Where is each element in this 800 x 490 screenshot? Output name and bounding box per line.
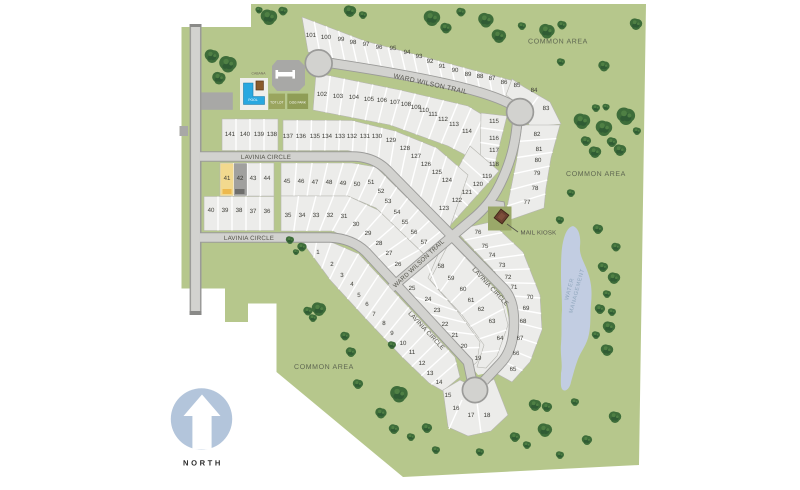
svg-text:48: 48 xyxy=(326,179,333,186)
svg-text:99: 99 xyxy=(338,36,345,43)
svg-text:13: 13 xyxy=(427,370,434,377)
svg-text:100: 100 xyxy=(321,34,332,41)
svg-text:29: 29 xyxy=(365,230,372,237)
svg-text:23: 23 xyxy=(434,307,441,314)
svg-text:45: 45 xyxy=(284,178,291,185)
svg-text:116: 116 xyxy=(489,135,499,142)
svg-text:106: 106 xyxy=(377,97,388,104)
svg-text:63: 63 xyxy=(489,318,496,325)
svg-text:71: 71 xyxy=(511,284,518,291)
svg-text:11: 11 xyxy=(409,349,416,356)
svg-text:COMMON AREA: COMMON AREA xyxy=(566,171,626,178)
svg-text:50: 50 xyxy=(354,181,361,188)
svg-text:141: 141 xyxy=(225,131,236,138)
svg-text:COMMON AREA: COMMON AREA xyxy=(294,364,354,371)
svg-text:DOG PARK: DOG PARK xyxy=(289,100,306,104)
svg-text:105: 105 xyxy=(364,96,375,103)
svg-text:28: 28 xyxy=(376,240,383,247)
svg-text:121: 121 xyxy=(462,189,473,196)
svg-text:16: 16 xyxy=(453,405,460,412)
svg-text:26: 26 xyxy=(395,261,402,268)
svg-text:125: 125 xyxy=(432,169,443,176)
svg-text:107: 107 xyxy=(390,99,401,106)
svg-text:119: 119 xyxy=(482,173,492,180)
svg-text:93: 93 xyxy=(416,53,423,60)
svg-text:98: 98 xyxy=(350,39,357,46)
svg-text:58: 58 xyxy=(438,263,445,270)
svg-text:17: 17 xyxy=(468,412,475,419)
svg-text:126: 126 xyxy=(421,161,432,168)
svg-text:38: 38 xyxy=(236,207,243,214)
svg-text:87: 87 xyxy=(489,75,496,82)
svg-text:127: 127 xyxy=(411,153,422,160)
svg-text:94: 94 xyxy=(404,49,411,56)
svg-text:88: 88 xyxy=(477,73,484,80)
svg-text:15: 15 xyxy=(445,392,452,399)
svg-text:52: 52 xyxy=(378,188,385,195)
svg-text:25: 25 xyxy=(409,285,416,292)
svg-text:135: 135 xyxy=(310,133,321,140)
svg-text:138: 138 xyxy=(267,131,278,138)
svg-text:112: 112 xyxy=(438,116,448,123)
svg-text:24: 24 xyxy=(425,296,432,303)
svg-text:12: 12 xyxy=(419,360,426,367)
svg-text:85: 85 xyxy=(514,82,521,89)
svg-text:104: 104 xyxy=(349,94,360,101)
svg-text:18: 18 xyxy=(484,412,491,419)
svg-text:78: 78 xyxy=(532,185,539,192)
svg-text:54: 54 xyxy=(394,209,401,216)
svg-text:36: 36 xyxy=(264,208,271,215)
svg-text:72: 72 xyxy=(505,274,512,281)
svg-text:83: 83 xyxy=(543,105,550,112)
svg-text:46: 46 xyxy=(298,178,305,185)
svg-text:101: 101 xyxy=(306,32,317,39)
svg-text:111: 111 xyxy=(428,111,438,118)
svg-text:CABANA: CABANA xyxy=(252,72,267,76)
svg-text:73: 73 xyxy=(499,262,506,269)
svg-text:70: 70 xyxy=(527,294,534,301)
svg-text:95: 95 xyxy=(390,45,397,52)
svg-text:LAVINIA CIRCLE: LAVINIA CIRCLE xyxy=(224,235,274,242)
svg-text:113: 113 xyxy=(449,121,459,128)
svg-text:35: 35 xyxy=(285,212,292,219)
svg-text:27: 27 xyxy=(386,250,393,257)
svg-text:60: 60 xyxy=(460,286,467,293)
svg-text:65: 65 xyxy=(510,366,517,373)
svg-text:91: 91 xyxy=(439,63,446,70)
svg-text:133: 133 xyxy=(335,133,346,140)
svg-text:47: 47 xyxy=(312,179,319,186)
svg-text:40: 40 xyxy=(208,207,215,214)
svg-text:68: 68 xyxy=(520,318,527,325)
svg-text:84: 84 xyxy=(531,87,538,94)
svg-text:62: 62 xyxy=(478,306,485,313)
svg-text:89: 89 xyxy=(465,71,472,78)
svg-text:139: 139 xyxy=(254,131,265,138)
svg-text:57: 57 xyxy=(421,239,428,246)
svg-text:TOT LOT: TOT LOT xyxy=(270,101,283,105)
svg-text:115: 115 xyxy=(489,118,499,125)
svg-text:MAIL KIOSK: MAIL KIOSK xyxy=(521,230,557,237)
svg-text:81: 81 xyxy=(536,146,543,153)
svg-text:41: 41 xyxy=(224,175,231,182)
svg-text:79: 79 xyxy=(534,170,541,177)
svg-text:137: 137 xyxy=(283,133,294,140)
svg-text:129: 129 xyxy=(386,137,397,144)
svg-text:128: 128 xyxy=(400,145,411,152)
svg-text:86: 86 xyxy=(501,79,508,86)
svg-text:80: 80 xyxy=(535,157,542,164)
svg-text:120: 120 xyxy=(473,181,484,188)
svg-text:130: 130 xyxy=(372,133,383,140)
svg-text:124: 124 xyxy=(442,177,453,184)
svg-text:49: 49 xyxy=(340,180,347,187)
svg-text:74: 74 xyxy=(489,252,496,259)
svg-text:97: 97 xyxy=(363,41,370,48)
svg-text:75: 75 xyxy=(482,243,489,250)
svg-text:114: 114 xyxy=(462,128,472,135)
svg-text:44: 44 xyxy=(264,175,271,182)
svg-text:43: 43 xyxy=(250,175,257,182)
svg-text:42: 42 xyxy=(237,175,244,182)
svg-text:77: 77 xyxy=(524,199,531,206)
svg-text:31: 31 xyxy=(341,213,348,220)
svg-text:61: 61 xyxy=(468,297,475,304)
svg-text:33: 33 xyxy=(313,212,320,219)
svg-text:POOL: POOL xyxy=(248,98,258,102)
svg-text:32: 32 xyxy=(327,212,334,219)
svg-text:14: 14 xyxy=(436,379,443,386)
svg-text:132: 132 xyxy=(347,133,358,140)
svg-text:20: 20 xyxy=(461,343,468,350)
svg-text:NORTH: NORTH xyxy=(183,459,223,468)
svg-text:64: 64 xyxy=(497,335,504,342)
svg-text:90: 90 xyxy=(452,67,459,74)
svg-text:103: 103 xyxy=(333,93,344,100)
svg-text:131: 131 xyxy=(360,133,371,140)
svg-text:55: 55 xyxy=(402,219,409,226)
svg-text:122: 122 xyxy=(452,197,463,204)
svg-text:59: 59 xyxy=(448,275,455,282)
svg-text:92: 92 xyxy=(427,58,434,65)
svg-text:19: 19 xyxy=(475,355,482,362)
svg-text:COMMON AREA: COMMON AREA xyxy=(528,39,588,46)
svg-text:22: 22 xyxy=(442,321,449,328)
svg-text:69: 69 xyxy=(523,305,530,312)
svg-text:134: 134 xyxy=(322,133,333,140)
svg-text:118: 118 xyxy=(489,161,499,168)
svg-text:37: 37 xyxy=(250,208,257,215)
svg-text:123: 123 xyxy=(439,205,450,212)
svg-text:34: 34 xyxy=(299,212,306,219)
svg-text:LAVINIA CIRCLE: LAVINIA CIRCLE xyxy=(241,154,291,161)
svg-text:30: 30 xyxy=(353,221,360,228)
svg-text:136: 136 xyxy=(296,133,307,140)
svg-text:39: 39 xyxy=(222,207,229,214)
svg-text:53: 53 xyxy=(385,198,392,205)
svg-text:76: 76 xyxy=(475,229,482,236)
svg-text:10: 10 xyxy=(400,340,407,347)
svg-text:96: 96 xyxy=(376,44,383,51)
svg-text:102: 102 xyxy=(317,91,328,98)
svg-text:82: 82 xyxy=(534,131,541,138)
svg-text:21: 21 xyxy=(452,332,459,339)
svg-text:140: 140 xyxy=(240,131,251,138)
svg-text:51: 51 xyxy=(368,179,375,186)
svg-text:67: 67 xyxy=(517,335,524,342)
svg-text:117: 117 xyxy=(489,147,499,154)
svg-text:56: 56 xyxy=(411,229,418,236)
svg-text:66: 66 xyxy=(513,350,520,357)
